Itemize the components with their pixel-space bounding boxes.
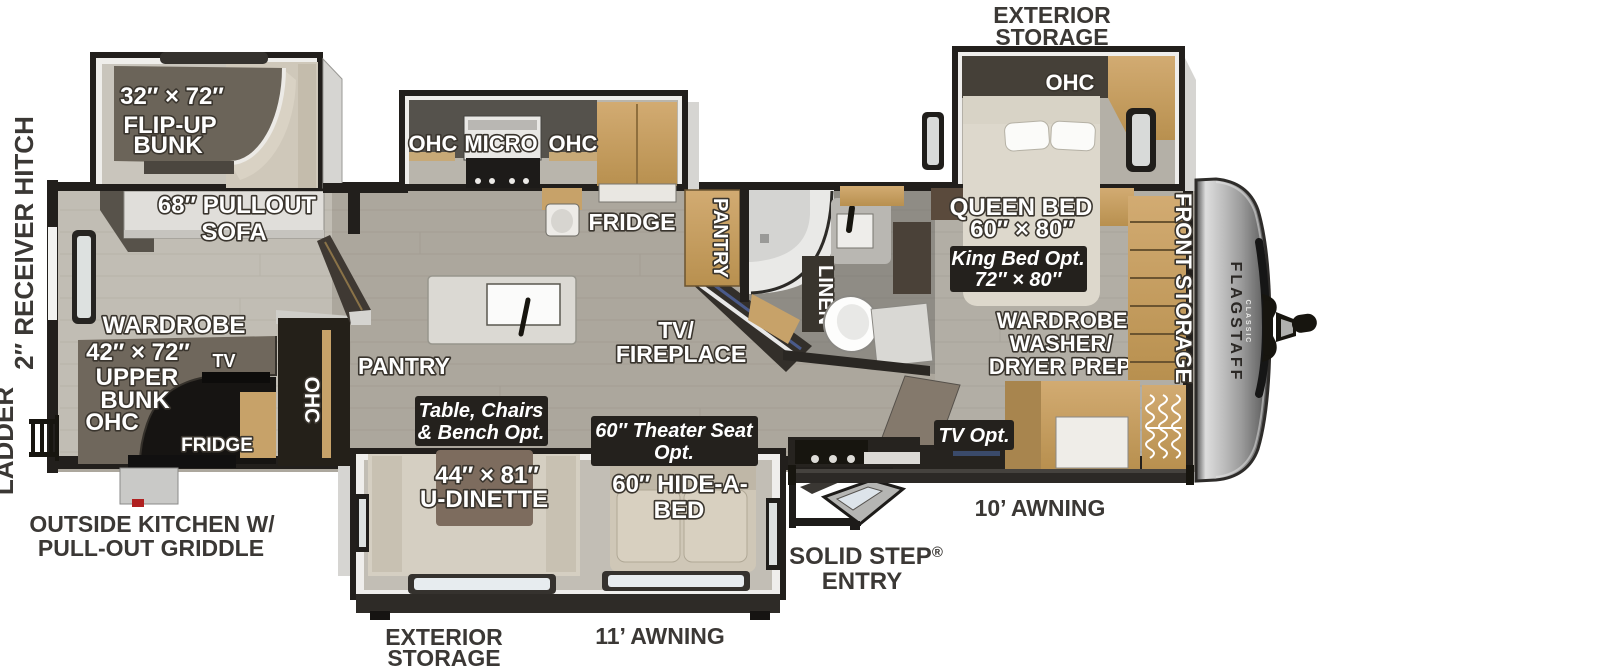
svg-text:BED: BED xyxy=(654,497,705,524)
svg-text:WARDROBE: WARDROBE xyxy=(997,308,1128,333)
svg-text:CLASSIC: CLASSIC xyxy=(1244,300,1251,345)
svg-text:WARDROBE: WARDROBE xyxy=(103,312,246,339)
svg-text:OUTSIDE KITCHEN W/: OUTSIDE KITCHEN W/ xyxy=(29,511,275,537)
svg-text:FRIDGE: FRIDGE xyxy=(589,209,676,235)
svg-text:11’ AWNING: 11’ AWNING xyxy=(595,623,725,649)
svg-text:DRYER PREP: DRYER PREP xyxy=(989,354,1131,379)
svg-text:ENTRY: ENTRY xyxy=(822,568,902,595)
svg-text:SOFA: SOFA xyxy=(201,219,266,246)
svg-text:OHC: OHC xyxy=(409,131,458,156)
svg-text:72″ × 80″: 72″ × 80″ xyxy=(975,269,1063,291)
svg-text:2″ RECEIVER HITCH: 2″ RECEIVER HITCH xyxy=(9,116,39,370)
svg-text:FRIDGE: FRIDGE xyxy=(181,435,253,456)
svg-text:OHC: OHC xyxy=(1046,70,1095,95)
svg-text:60″ Theater Seat: 60″ Theater Seat xyxy=(595,420,754,442)
svg-text:BUNK: BUNK xyxy=(133,132,203,159)
svg-text:FRONT STORAGE: FRONT STORAGE xyxy=(1171,193,1196,383)
svg-text:STORAGE: STORAGE xyxy=(387,645,500,666)
svg-text:STORAGE: STORAGE xyxy=(995,24,1108,50)
svg-text:FIREPLACE: FIREPLACE xyxy=(616,341,746,367)
svg-text:WASHER/: WASHER/ xyxy=(1010,331,1113,356)
svg-text:60″ × 80″: 60″ × 80″ xyxy=(970,216,1074,243)
svg-text:PANTRY: PANTRY xyxy=(358,353,450,379)
svg-text:King Bed Opt.: King Bed Opt. xyxy=(951,248,1084,270)
svg-text:FLAGSTAFF: FLAGSTAFF xyxy=(1227,262,1244,383)
svg-text:44″ × 81″: 44″ × 81″ xyxy=(435,462,539,489)
svg-text:68″ PULLOUT: 68″ PULLOUT xyxy=(158,192,317,219)
svg-text:OHC: OHC xyxy=(300,377,323,424)
svg-text:42″ × 72″: 42″ × 72″ xyxy=(86,339,190,366)
svg-text:TV/: TV/ xyxy=(658,317,694,343)
svg-text:10’ AWNING: 10’ AWNING xyxy=(975,495,1106,521)
svg-text:TV: TV xyxy=(212,351,235,371)
svg-text:MICRO: MICRO xyxy=(464,131,537,156)
svg-text:& Bench Opt.: & Bench Opt. xyxy=(418,422,545,444)
svg-text:32″ × 72″: 32″ × 72″ xyxy=(120,83,224,110)
svg-text:LADDER: LADDER xyxy=(0,387,19,496)
svg-text:60″ HIDE-A-: 60″ HIDE-A- xyxy=(612,471,748,498)
svg-text:TV Opt.: TV Opt. xyxy=(938,425,1009,447)
svg-text:OHC: OHC xyxy=(549,131,598,156)
svg-text:OHC: OHC xyxy=(85,409,138,436)
svg-text:Opt.: Opt. xyxy=(654,442,694,464)
svg-text:U-DINETTE: U-DINETTE xyxy=(420,486,548,513)
svg-text:Table, Chairs: Table, Chairs xyxy=(419,400,544,422)
svg-text:SOLID STEP®: SOLID STEP® xyxy=(789,543,943,570)
svg-text:PULL-OUT GRIDDLE: PULL-OUT GRIDDLE xyxy=(38,535,264,561)
svg-text:PANTRY: PANTRY xyxy=(709,198,731,279)
